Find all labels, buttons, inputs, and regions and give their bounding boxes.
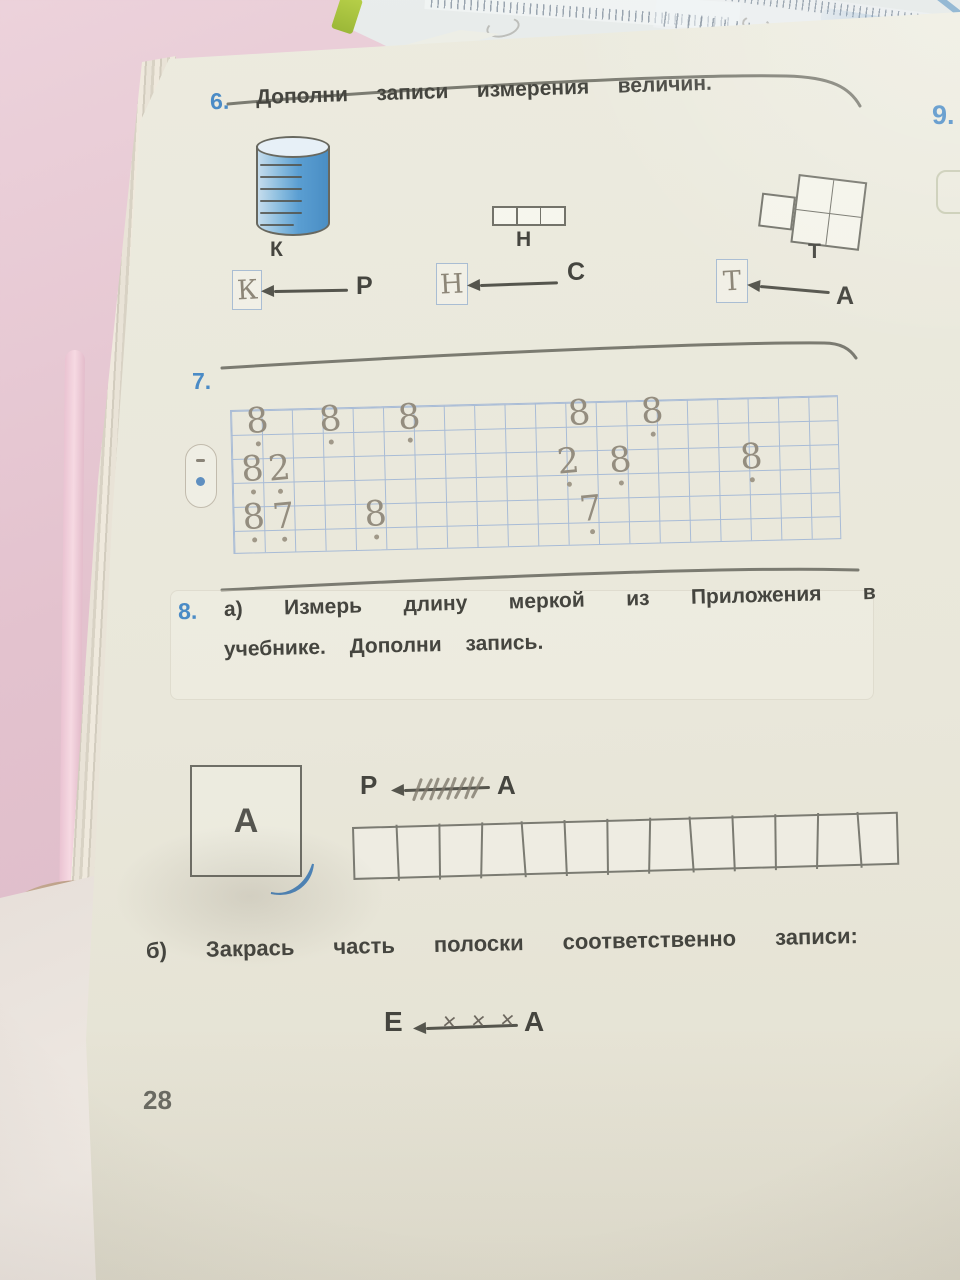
strip-divider (396, 825, 401, 881)
pencil-dot (283, 537, 288, 542)
cylinder-top (256, 136, 330, 158)
square-label: А (234, 802, 259, 841)
handwritten-digit: 8 (393, 398, 426, 437)
match-arrow (274, 289, 348, 293)
workbook-page: 6. Дополни записи измерения величин. К Н… (0, 0, 960, 1280)
pencil-dot (749, 477, 754, 482)
cross-marks: ✕✕✕ (426, 1024, 518, 1030)
strip-divider (438, 824, 441, 880)
pencil-dot (278, 489, 283, 494)
handwritten-letter: Н (439, 268, 464, 300)
match-source-A: А (836, 282, 854, 311)
handwritten-letter: Т (722, 265, 742, 297)
strip-divider (606, 819, 609, 875)
arrow1-right-letter: А (497, 770, 516, 801)
exercise6-number: 6. (210, 88, 230, 115)
strip-divider (563, 820, 568, 876)
blue-swoosh-mark (268, 858, 320, 902)
strip-figure (492, 206, 566, 226)
tile-grid (790, 174, 867, 251)
figure-label-K: К (270, 238, 283, 262)
handwritten-letter: К (236, 274, 259, 306)
answer-box-T[interactable]: Т (716, 259, 748, 303)
arrow2-left-letter: Е (384, 1006, 403, 1038)
answer-marker (185, 444, 217, 508)
handwritten-digit: 8 (359, 495, 392, 534)
handwritten-digit: 8 (563, 394, 596, 433)
cylinder-figure (256, 136, 330, 238)
cross-mark: ✕ (441, 1011, 458, 1033)
strip-divider (689, 817, 695, 873)
strip-divider (480, 822, 483, 878)
handwritten-digit: 2 (263, 449, 296, 488)
match-arrow (480, 281, 558, 286)
pencil-dot (651, 432, 656, 437)
arrow2-right-letter: А (524, 1006, 544, 1038)
separator-curve (216, 336, 860, 374)
marker-dot (196, 477, 205, 486)
pencil-dot (329, 439, 334, 444)
arrow1-left-letter: Р (360, 770, 377, 801)
pencil-dot (567, 482, 572, 487)
handwritten-digit: 2 (552, 442, 585, 481)
handwritten-digit: 8 (237, 498, 270, 537)
pencil-dot (251, 489, 256, 494)
strip-divider (774, 814, 777, 870)
handwritten-digit: 8 (734, 438, 767, 477)
exercise8-part-b-text: б) Закрась часть полоски соответственно … (146, 923, 858, 964)
pencil-dot (256, 441, 261, 446)
exercise7-number: 7. (192, 368, 211, 395)
pencil-dot (408, 438, 413, 443)
handwritten-digit: 8 (636, 392, 669, 431)
strip-divider (648, 818, 651, 874)
match-arrow (760, 285, 830, 294)
pencil-dot (590, 529, 595, 534)
marker-dash (196, 459, 205, 462)
handwritten-digit: 7 (574, 490, 607, 529)
handwritten-digit: 8 (241, 402, 274, 441)
adjacent-page-box (936, 170, 960, 214)
handwritten-digit: 8 (314, 400, 347, 439)
adjacent-exercise-number: 9. (932, 100, 955, 131)
strip-divider (521, 821, 527, 877)
page-number: 28 (143, 1085, 172, 1116)
pencil-dot (619, 480, 624, 485)
strip-divider (816, 813, 819, 869)
figure-label-T: Т (808, 240, 821, 264)
cylinder-body (256, 146, 330, 236)
answer-box-N[interactable]: Н (436, 263, 468, 305)
tally-marks (404, 786, 490, 792)
cross-mark: ✕ (470, 1010, 487, 1032)
handwritten-digit: 7 (267, 497, 300, 536)
match-source-P: Р (356, 272, 373, 301)
figure-label-N: Н (516, 228, 531, 252)
tile-square (758, 193, 796, 231)
exercise8-number: 8. (178, 598, 198, 625)
match-source-S: С (567, 258, 585, 287)
pencil-dot (252, 537, 257, 542)
strip-divider (856, 812, 862, 868)
handwritten-digit: 8 (604, 441, 637, 480)
ex7-grid[interactable]: 88888822888787 (230, 395, 841, 554)
measure-strip[interactable] (352, 812, 899, 880)
strip-divider (731, 815, 736, 871)
pencil-dot (374, 534, 379, 539)
cross-mark: ✕ (499, 1009, 516, 1031)
answer-box-K[interactable]: К (232, 270, 262, 310)
